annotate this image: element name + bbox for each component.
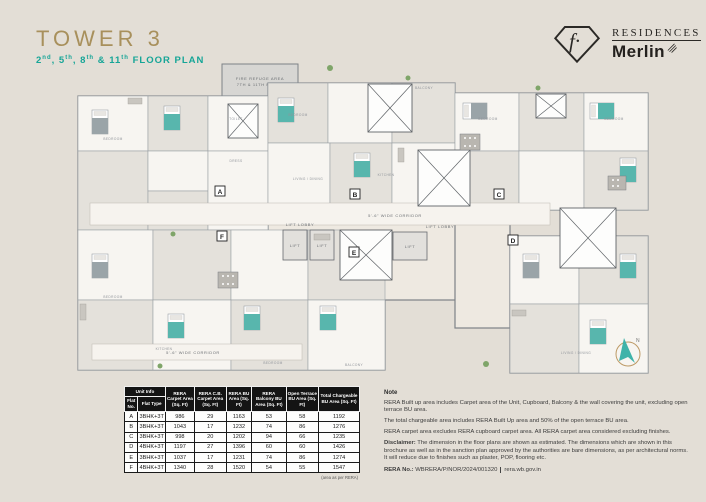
room-label: LIVING / DINING (293, 177, 323, 181)
dining-table-icon (608, 176, 626, 190)
col-flat-type: Flat Type (138, 396, 165, 411)
unit-marker-e: E (349, 247, 359, 257)
cell-bu: 1202 (226, 432, 252, 442)
unit-marker-c: C (494, 189, 504, 199)
wardrobe-icon (398, 148, 404, 162)
cell-bu: 1232 (226, 422, 252, 432)
wardrobe-icon (512, 310, 526, 316)
unit-marker-b: B (350, 189, 360, 199)
unit-marker-d: D (508, 235, 518, 245)
sofa-icon (80, 304, 86, 320)
fire-refuge-label-1: FIRE REFUGE AREA (236, 76, 284, 81)
svg-text:A: A (218, 189, 223, 196)
cell-carpet: 1043 (165, 422, 194, 432)
plant-icon (406, 76, 411, 81)
cell-cb-carpet: 17 (194, 452, 226, 462)
room-label: BEDROOM (604, 117, 623, 121)
room-label: TOILET (229, 117, 243, 121)
stair-shaft-icon (228, 104, 258, 138)
cell-total-bu: 1192 (319, 412, 360, 422)
plant-icon (158, 364, 163, 369)
cell-flat-type: 4BHK+3T (138, 463, 165, 473)
brochure-page: { "colors": { "accent_gold": "#a8905c", … (0, 0, 706, 502)
table-row: B 3BHK+3T 1043 17 1232 74 86 1276 (125, 422, 360, 432)
plant-icon (171, 232, 176, 237)
svg-text:LIFT: LIFT (290, 243, 301, 248)
cell-carpet: 986 (165, 412, 194, 422)
svg-text:LIFT: LIFT (405, 244, 416, 249)
notes-block: Note RERA Built up area includes Carpet … (384, 390, 690, 478)
bed-icon (92, 254, 108, 278)
cell-cb-carpet: 27 (194, 442, 226, 452)
cell-carpet: 1340 (165, 463, 194, 473)
cell-bu: 1163 (226, 412, 252, 422)
dining-table-icon (218, 272, 238, 288)
rera-number: WBRERA/P/NOR/2024/001320 (415, 467, 497, 473)
cell-flat-no: D (125, 442, 138, 452)
svg-text:D: D (511, 238, 516, 245)
lift-lobby-label-right: LIFT LOBBY (426, 224, 455, 229)
rera-site: rera.wb.gov.in (500, 467, 541, 473)
col-unit-info: Unit Info (125, 387, 166, 397)
cell-carpet: 1197 (165, 442, 194, 452)
lift-lobby-label-left: LIFT LOBBY (286, 222, 315, 227)
cell-terrace-bu: 55 (286, 463, 318, 473)
col-rera-bu: RERA BU Area (Sq. Ft) (226, 387, 252, 412)
note-line-3: RERA carpet area excludes RERA cupboard … (384, 429, 690, 437)
cell-terrace-bu: 86 (286, 422, 318, 432)
brand-wordmark: RESIDENCES Merlin (612, 27, 701, 62)
bed-icon (278, 98, 294, 122)
rera-label: RERA No.: (384, 467, 414, 473)
room-label: BEDROOM (478, 117, 497, 121)
table-row: A 3BHK+3T 986 29 1163 53 58 1192 (125, 412, 360, 422)
room-label: BALCONY (345, 363, 364, 367)
stair-shaft-icon (340, 230, 392, 280)
cell-flat-type: 4BHK+3T (138, 442, 165, 452)
brand-residences: RESIDENCES (612, 27, 701, 41)
rera-line: RERA No.: WBRERA/P/NOR/2024/001320rera.w… (384, 467, 690, 475)
bridge-block (455, 210, 510, 328)
stair-shaft-icon (536, 94, 566, 118)
monogram-letter: f· (569, 29, 580, 53)
cell-balcony-bu: 54 (252, 463, 286, 473)
svg-text:LIFT: LIFT (317, 243, 328, 248)
cell-terrace-bu: 66 (286, 432, 318, 442)
sofa-icon (314, 234, 330, 240)
unit-marker-f: F (217, 231, 227, 241)
main-corridor (90, 203, 550, 225)
room-label: LIVING / DINING (561, 351, 591, 355)
stair-shaft-icon (418, 150, 470, 206)
cell-cb-carpet: 28 (194, 463, 226, 473)
page-title: TOWER 3 (36, 26, 164, 52)
room-label: DRESS (230, 159, 243, 163)
room-label: KITCHEN (378, 173, 395, 177)
col-rera-cb-carpet: RERA C.B. Carpet Area (Sq. Ft) (194, 387, 226, 412)
svg-text:N: N (636, 338, 640, 344)
cell-total-bu: 1276 (319, 422, 360, 432)
plant-icon (483, 361, 489, 367)
disclaimer-label: Disclaimer: (384, 440, 416, 446)
bed-icon (92, 110, 108, 134)
plant-icon (536, 86, 541, 91)
table-row: C 3BHK+3T 998 20 1202 94 66 1235 (125, 432, 360, 442)
cell-total-bu: 1547 (319, 463, 360, 473)
col-rera-balcony-bu: RERA Balcony BU Area (Sq. Ft) (252, 387, 286, 412)
cell-cb-carpet: 29 (194, 412, 226, 422)
cell-flat-type: 3BHK+3T (138, 412, 165, 422)
svg-text:F: F (220, 234, 224, 241)
cell-balcony-bu: 74 (252, 452, 286, 462)
table-row: F 4BHK+3T 1340 28 1520 54 55 1547 (125, 463, 360, 473)
cell-carpet: 1037 (165, 452, 194, 462)
cell-balcony-bu: 94 (252, 432, 286, 442)
corridor-label-top: 5'-6" WIDE CORRIDOR (368, 213, 422, 218)
bed-icon (168, 314, 184, 338)
floor-plan-drawing: FIRE REFUGE AREA 7TH & 11TH FLOOR 5'-6" … (68, 58, 658, 384)
room-label: BEDROOM (103, 137, 122, 141)
cell-flat-no: A (125, 412, 138, 422)
table-row: D 4BHK+3T 1197 27 1396 60 60 1426 (125, 442, 360, 452)
cell-flat-no: B (125, 422, 138, 432)
cell-flat-no: E (125, 452, 138, 462)
room-label: KITCHEN (156, 347, 173, 351)
lift: LIFT (393, 232, 427, 260)
svg-text:C: C (497, 192, 502, 199)
col-rera-carpet: RERA Carpet Area (Sq. Ft) (165, 387, 194, 412)
cell-flat-no: C (125, 432, 138, 442)
bed-icon (620, 254, 636, 278)
disclaimer-text: The dimension in the floor plans are sho… (384, 440, 688, 461)
cell-flat-no: F (125, 463, 138, 473)
cell-bu: 1231 (226, 452, 252, 462)
col-flat-no: Flat No. (125, 396, 138, 411)
bed-icon (244, 306, 260, 330)
bed-icon (354, 153, 370, 177)
cell-terrace-bu: 86 (286, 452, 318, 462)
plant-icon (327, 65, 333, 71)
corridor-label-bottom: 5'-6" WIDE CORRIDOR (166, 350, 220, 355)
dining-table-icon (460, 134, 480, 150)
cell-terrace-bu: 58 (286, 412, 318, 422)
cell-flat-type: 3BHK+3T (138, 432, 165, 442)
col-open-terrace-bu: Open Terrace BU Area (Sq. Ft) (286, 387, 318, 412)
note-line-1: RERA Built up area includes Carpet area … (384, 400, 690, 415)
cell-balcony-bu: 74 (252, 422, 286, 432)
stair-shaft-icon (560, 208, 616, 268)
room-label: BEDROOM (103, 295, 122, 299)
table-row: E 3BHK+3T 1037 17 1231 74 86 1274 (125, 452, 360, 462)
cell-bu: 1396 (226, 442, 252, 452)
note-line-2: The total chargeable area includes RERA … (384, 418, 690, 426)
cell-total-bu: 1274 (319, 452, 360, 462)
cell-bu: 1520 (226, 463, 252, 473)
cell-terrace-bu: 60 (286, 442, 318, 452)
svg-text:B: B (353, 192, 358, 199)
unit-area-table: Unit Info RERA Carpet Area (Sq. Ft) RERA… (124, 386, 360, 480)
lift: LIFT (283, 230, 307, 260)
svg-text:E: E (352, 250, 357, 257)
cell-flat-type: 3BHK+3T (138, 422, 165, 432)
room-label: BALCONY (415, 86, 434, 90)
unit-marker-a: A (215, 186, 225, 196)
bed-icon (164, 106, 180, 130)
table-footnote: (area as per RERA) (124, 475, 360, 480)
room-label: BEDROOM (263, 361, 282, 365)
cell-flat-type: 3BHK+3T (138, 452, 165, 462)
cell-balcony-bu: 53 (252, 412, 286, 422)
wardrobe-icon (128, 98, 142, 104)
stair-shaft-icon (368, 84, 412, 132)
cell-balcony-bu: 60 (252, 442, 286, 452)
cell-total-bu: 1235 (319, 432, 360, 442)
cell-cb-carpet: 20 (194, 432, 226, 442)
room-label: BEDROOM (288, 113, 307, 117)
disclaimer: Disclaimer: The dimension in the floor p… (384, 440, 690, 463)
cell-total-bu: 1426 (319, 442, 360, 452)
merlin-wing-icon (667, 43, 677, 53)
cell-carpet: 998 (165, 432, 194, 442)
cell-cb-carpet: 17 (194, 422, 226, 432)
note-title: Note (384, 390, 690, 398)
bed-icon (590, 320, 606, 344)
bed-icon (523, 254, 539, 278)
col-total-chargeable-bu: Total Chargeable BU Area (Sq. Ft) (319, 387, 360, 412)
bed-icon (320, 306, 336, 330)
floor-plan: FIRE REFUGE AREA 7TH & 11TH FLOOR 5'-6" … (68, 58, 658, 384)
